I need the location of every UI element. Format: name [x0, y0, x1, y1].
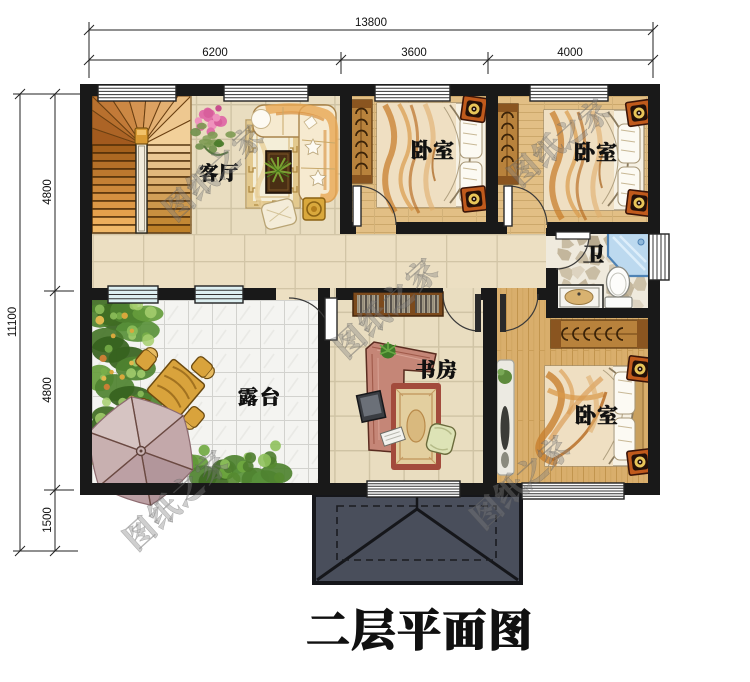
svg-text:4800: 4800	[42, 179, 54, 205]
svg-text:4000: 4000	[557, 47, 583, 59]
svg-text:4800: 4800	[42, 377, 54, 403]
svg-text:1500: 1500	[42, 507, 54, 533]
svg-text:11100: 11100	[7, 307, 19, 337]
svg-text:3600: 3600	[401, 47, 427, 59]
svg-text:13800: 13800	[355, 17, 387, 29]
svg-text:6200: 6200	[202, 47, 228, 59]
